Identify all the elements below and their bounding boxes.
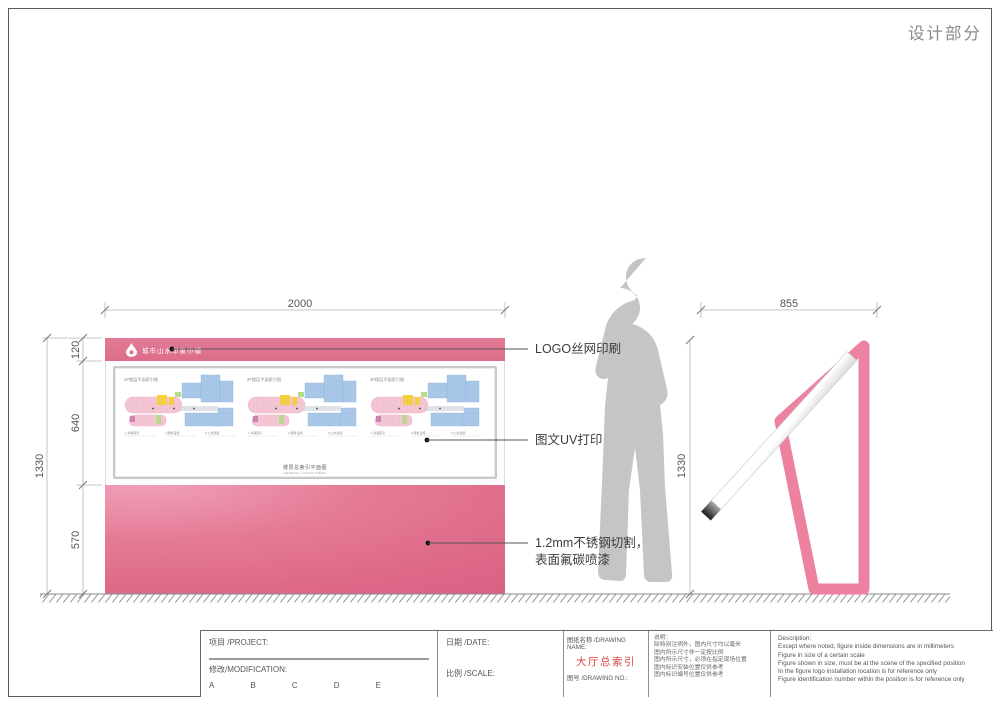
dimension-lines: [42, 302, 877, 594]
dim-header-height: 120: [70, 341, 82, 359]
dim-base-height: 570: [70, 531, 82, 549]
description-line: Figure in size of a certain scale: [778, 652, 987, 660]
drawing-no-label: 图号 /DRAWING NO.:: [567, 673, 645, 682]
date-label: 日期 /DATE:: [446, 637, 555, 648]
drawing-name-value: 大厅总索引: [567, 654, 645, 669]
revision-c: C: [292, 681, 298, 690]
revision-e: E: [376, 681, 381, 690]
notes-line: 除特别注明外，图内尺寸均以毫米: [654, 642, 765, 649]
revision-d: D: [334, 681, 340, 690]
scale-label: 比例 /SCALE:: [446, 668, 555, 679]
title-block-name-cell: 图纸名称 /DRAWING NAME: 大厅总索引 图号 /DRAWING NO…: [564, 631, 649, 697]
annotation-uv-print: 图文UV打印: [535, 432, 602, 447]
title-block-divider: [209, 658, 429, 660]
revision-a: A: [209, 681, 214, 690]
title-block-project-cell: 项目 /PROJECT: 修改/MODIFICATION: A B C D E: [201, 631, 438, 697]
title-block-date-cell: 日期 /DATE: 比例 /SCALE:: [438, 631, 564, 697]
drawing-name-label: 图纸名称 /DRAWING NAME:: [567, 635, 645, 651]
side-panel: [701, 352, 857, 521]
annotation-steel-line2: 表面氟碳喷漆: [535, 552, 610, 567]
revision-b: B: [250, 681, 255, 690]
title-block-notes-cell: 说明： 除特别注明外，图内尺寸均以毫米 图内所示尺寸非一定按比例 图内所示尺寸，…: [649, 631, 771, 697]
notes-line: 图内标识编号位置仅供参考: [654, 672, 765, 679]
revision-letters: A B C D E: [209, 681, 381, 690]
title-block-description-cell: Description: Except where noted, figure …: [771, 631, 993, 697]
description-line: Figure shown in size, must be at the sce…: [778, 660, 987, 668]
project-label: 项目 /PROJECT:: [209, 637, 429, 648]
dim-side-height: 1330: [676, 454, 688, 478]
dim-board-height: 640: [70, 414, 82, 432]
annotation-leaders: [170, 347, 528, 546]
annotation-logo-print: LOGO丝网印刷: [535, 342, 621, 356]
description-line: Figure identification number within the …: [778, 676, 987, 684]
drawing-sheet: 设计部分 城市山水印象小镇 1F楼层平面索引图 1 商铺索引 2 服务设施 3: [0, 0, 1000, 706]
notes-line: 图内标识安装位置仅供参考: [654, 665, 765, 672]
modification-label: 修改/MODIFICATION:: [209, 664, 429, 675]
human-silhouette: [595, 258, 672, 582]
side-elevation-view: [701, 346, 864, 589]
dim-front-total-height: 1330: [34, 454, 46, 478]
annotation-steel-line1: 1.2mm不锈钢切割，: [535, 535, 648, 550]
description-title: Description:: [778, 635, 987, 643]
description-line: In the figure logo installation location…: [778, 668, 987, 676]
title-block: 项目 /PROJECT: 修改/MODIFICATION: A B C D E …: [200, 630, 993, 697]
drawing-overlay: 2000 855 1330 120 640 570 1330 LOGO丝网印刷 …: [0, 0, 1000, 706]
ground-line: [40, 594, 950, 603]
description-line: Except where noted, figure inside dimens…: [778, 643, 987, 651]
dim-front-width: 2000: [288, 298, 312, 310]
dim-side-width: 855: [780, 298, 798, 310]
notes-line: 图内所示尺寸，必须在指定现场位置: [654, 657, 765, 664]
